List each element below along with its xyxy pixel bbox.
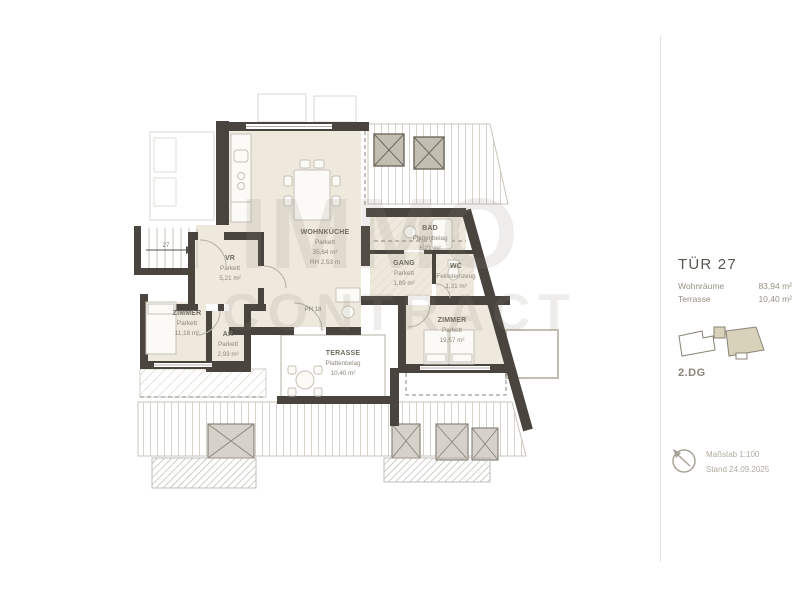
svg-text:19,57 m²: 19,57 m² bbox=[440, 337, 465, 344]
svg-text:VR: VR bbox=[225, 255, 235, 262]
svg-text:Parkett: Parkett bbox=[220, 265, 240, 272]
dense-hatch-strips bbox=[152, 458, 490, 488]
svg-text:5,21 m²: 5,21 m² bbox=[219, 275, 240, 282]
site-locator-minimap bbox=[672, 320, 776, 366]
minimap-highlight-unit bbox=[726, 327, 764, 356]
summary-row-wohnraeume: Wohnräume 83,94 m² bbox=[678, 280, 792, 293]
svg-text:Parkett: Parkett bbox=[315, 239, 335, 246]
svg-text:6,21 m²: 6,21 m² bbox=[419, 245, 440, 252]
summary-value: 83,94 m² bbox=[758, 280, 792, 293]
north-arrow-icon bbox=[668, 444, 700, 476]
svg-text:TERASSE: TERASSE bbox=[326, 350, 361, 357]
summary-row-terrasse: Terrasse 10,40 m² bbox=[678, 293, 792, 306]
side-terrace-hatch bbox=[140, 369, 266, 397]
svg-text:AR: AR bbox=[223, 331, 234, 338]
svg-text:1,89 m²: 1,89 m² bbox=[393, 280, 414, 287]
dining-table bbox=[294, 170, 330, 220]
svg-text:Parkett: Parkett bbox=[394, 270, 414, 277]
svg-text:Parkett: Parkett bbox=[218, 341, 238, 348]
panel-divider bbox=[660, 36, 661, 562]
summary-label: Wohnräume bbox=[678, 280, 724, 293]
svg-text:Parkett: Parkett bbox=[177, 320, 197, 327]
summary-value: 10,40 m² bbox=[758, 293, 792, 306]
unit-info-panel: TÜR 27 Wohnräume 83,94 m² Terrasse 10,40… bbox=[678, 256, 792, 306]
svg-text:Plattenbelag: Plattenbelag bbox=[412, 235, 448, 242]
upper-deck bbox=[368, 124, 508, 204]
svg-text:ZIMMER: ZIMMER bbox=[438, 317, 467, 324]
terrace-table bbox=[296, 371, 314, 389]
svg-text:10,40 m²: 10,40 m² bbox=[331, 370, 356, 377]
svg-text:Parkett: Parkett bbox=[442, 327, 462, 334]
svg-text:BAD: BAD bbox=[422, 225, 438, 232]
stair-number: 27 bbox=[163, 243, 170, 249]
scale-and-date: Maßstab 1:100 Stand 24.09.2025 bbox=[706, 447, 769, 477]
floorplan-page: 27 bbox=[0, 0, 800, 600]
svg-text:WC: WC bbox=[450, 263, 462, 270]
svg-text:Plattenbelag: Plattenbelag bbox=[325, 360, 361, 367]
summary-label: Terrasse bbox=[678, 293, 711, 306]
svg-text:GANG: GANG bbox=[393, 260, 415, 267]
svg-text:11,18 m²: 11,18 m² bbox=[175, 330, 199, 337]
svg-text:1,31 m²: 1,31 m² bbox=[445, 283, 466, 290]
unit-title: TÜR 27 bbox=[678, 256, 792, 273]
floor-level-label: 2.DG bbox=[678, 367, 706, 379]
sideboard bbox=[336, 288, 360, 302]
svg-text:RH 2,53 m: RH 2,53 m bbox=[310, 259, 340, 266]
date-text: Stand 24.09.2025 bbox=[706, 462, 769, 477]
floor-plan-drawing: 27 bbox=[0, 0, 660, 600]
minimap-highlight-tab bbox=[714, 327, 725, 338]
scale-text: Maßstab 1:100 bbox=[706, 447, 769, 462]
svg-text:35,64 m²: 35,64 m² bbox=[313, 249, 338, 256]
svg-text:WOHNKÜCHE: WOHNKÜCHE bbox=[301, 227, 350, 236]
svg-text:ZIMMER: ZIMMER bbox=[173, 310, 202, 317]
svg-text:2,93 m²: 2,93 m² bbox=[217, 351, 238, 358]
door-height-label: PH 18 bbox=[305, 307, 322, 313]
room-label-gang: GANG Parkett 1,89 m² bbox=[393, 260, 415, 287]
svg-text:Feinsteinzeug: Feinsteinzeug bbox=[436, 273, 476, 280]
